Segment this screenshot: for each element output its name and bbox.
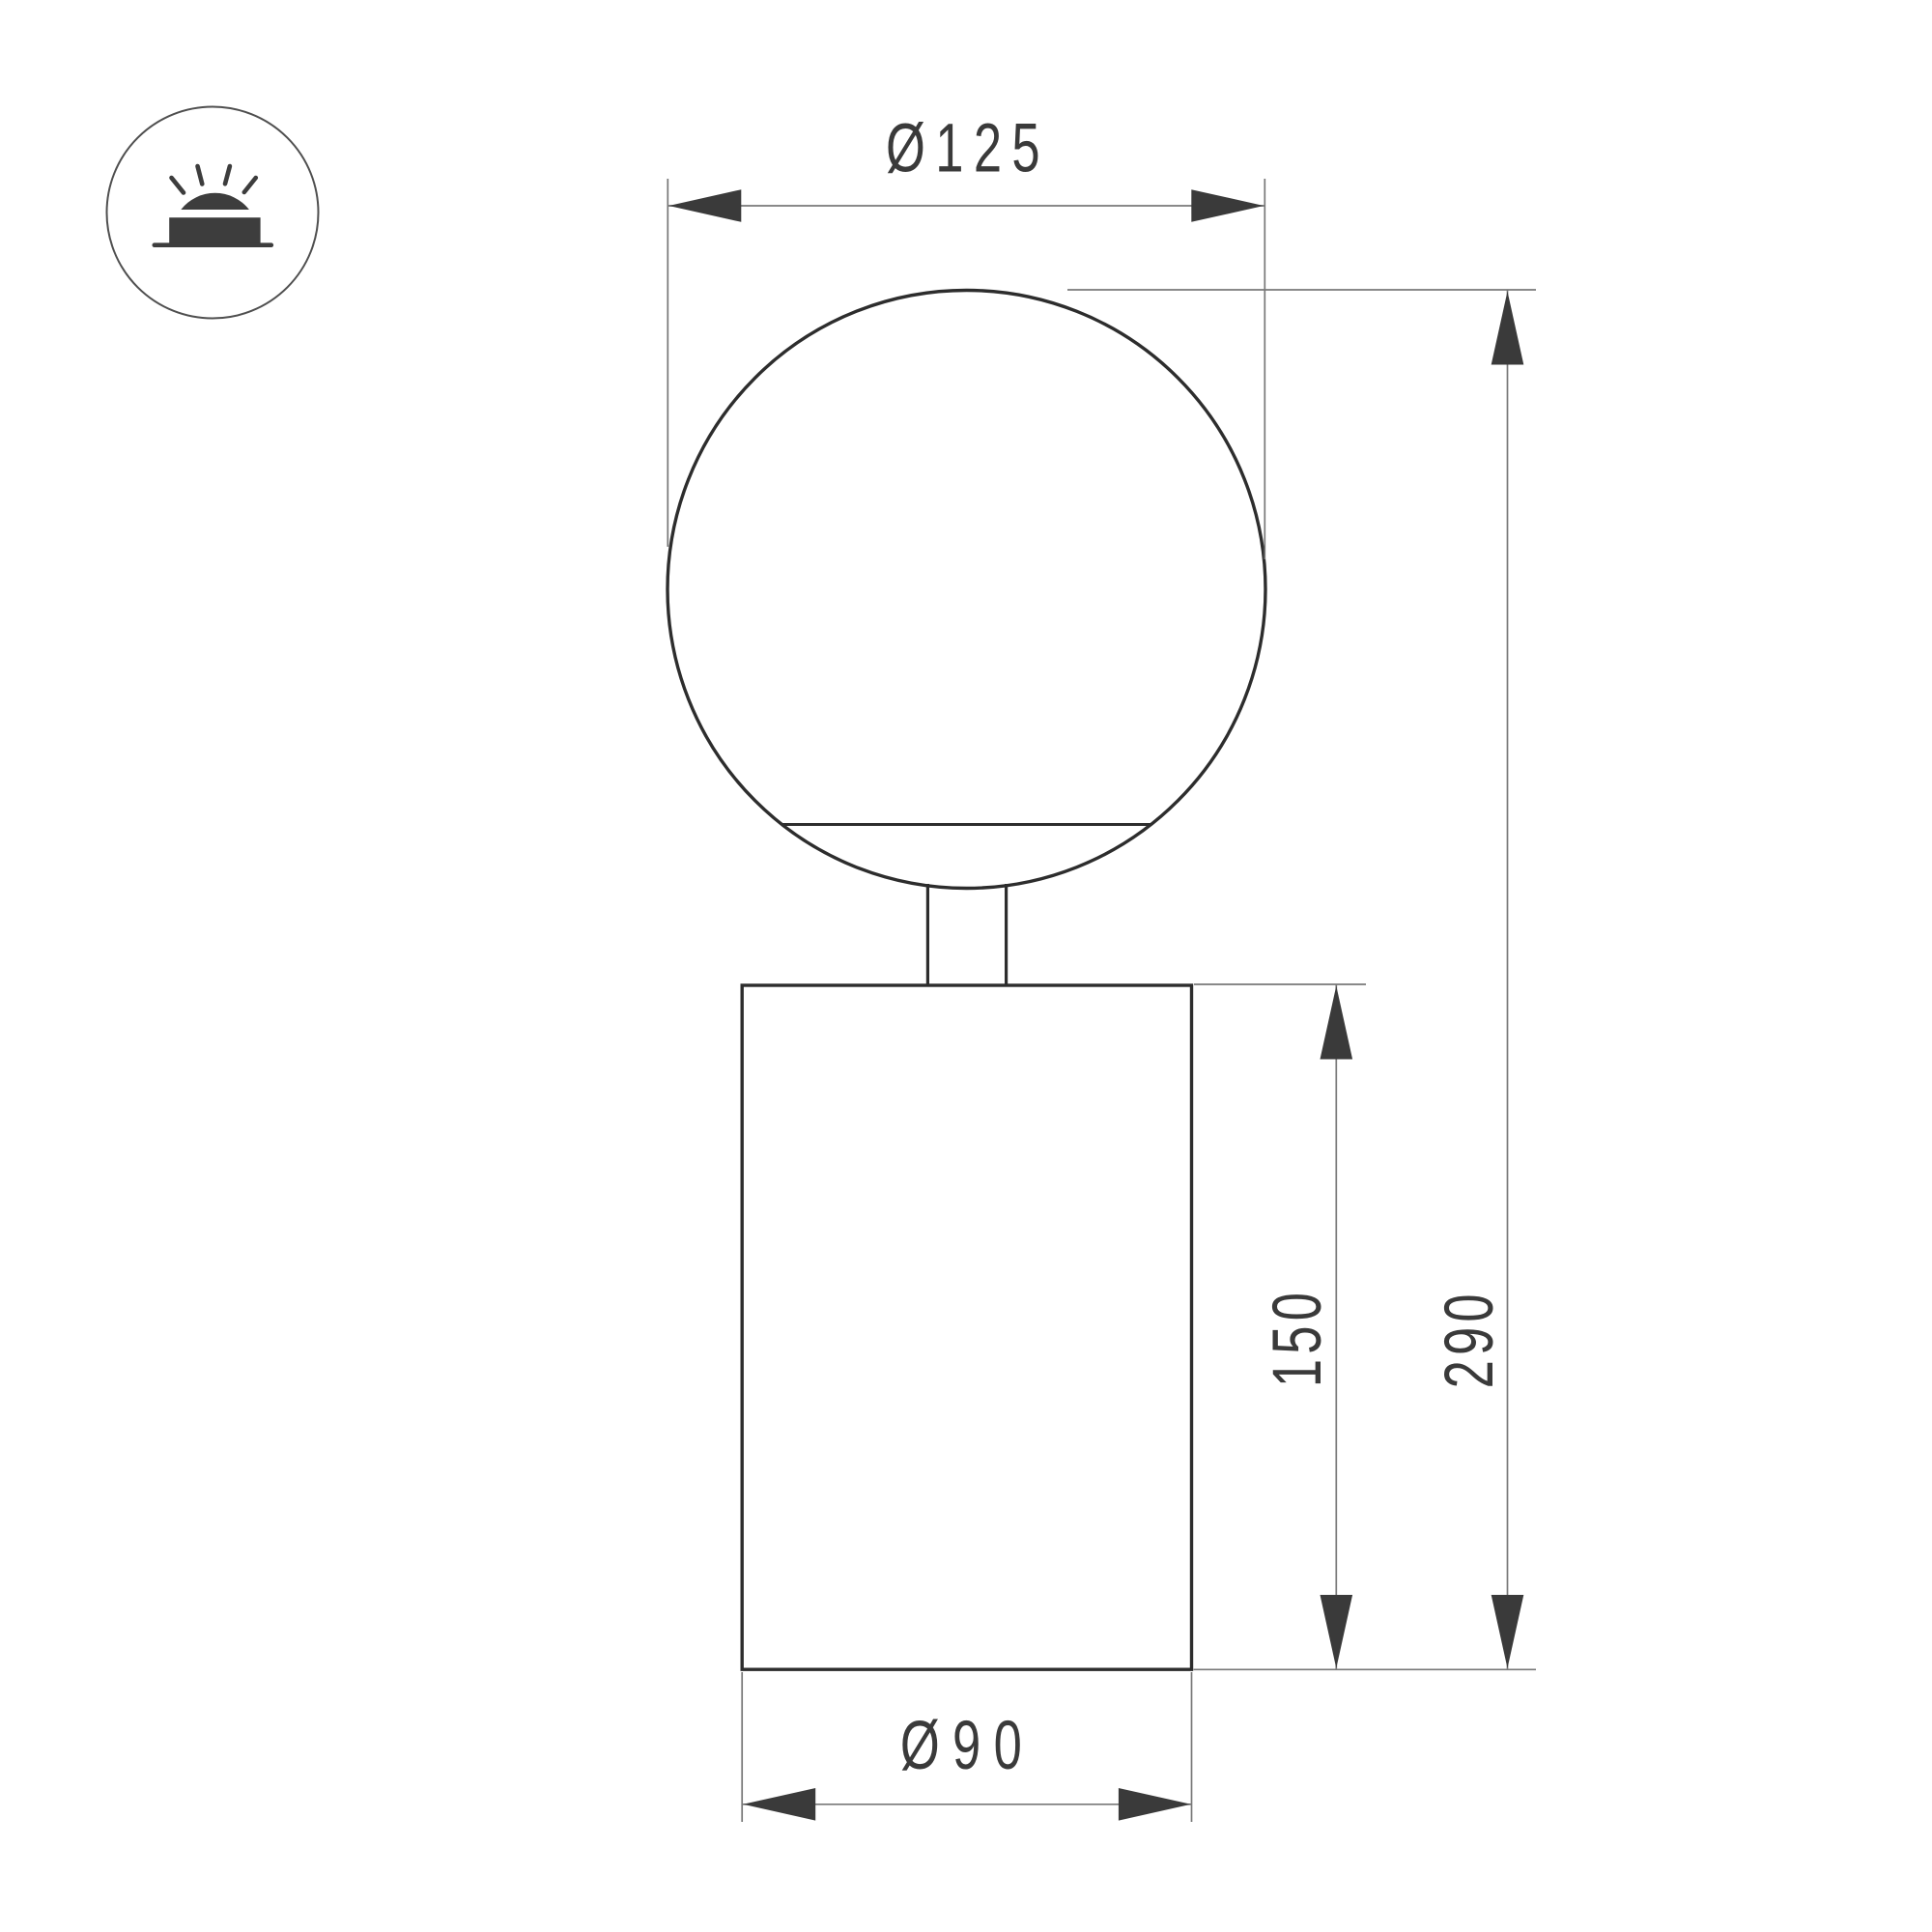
svg-text:Ø90: Ø90 xyxy=(900,1707,1035,1784)
svg-text:290: 290 xyxy=(1431,1289,1508,1388)
svg-text:150: 150 xyxy=(1259,1288,1336,1387)
svg-text:Ø125: Ø125 xyxy=(886,110,1050,187)
